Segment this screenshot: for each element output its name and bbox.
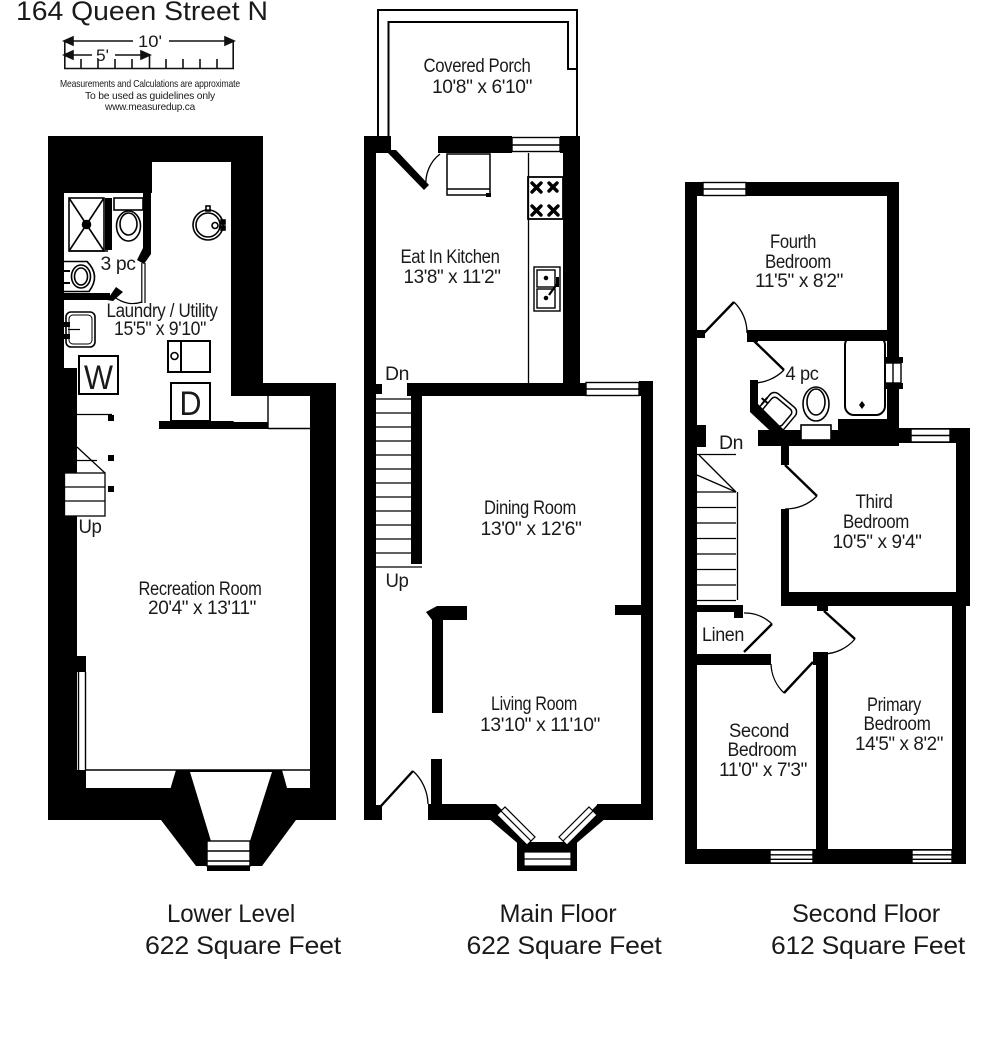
svg-text:11'5" x 8'2": 11'5" x 8'2" — [755, 271, 843, 292]
svg-text:10': 10' — [138, 32, 162, 51]
svg-text:20'4" x 13'11": 20'4" x 13'11" — [148, 598, 256, 619]
svg-text:13'8" x 11'2": 13'8" x 11'2" — [404, 267, 501, 288]
svg-text:11'0" x 7'3": 11'0" x 7'3" — [719, 760, 807, 781]
svg-text:4 pc: 4 pc — [786, 364, 819, 385]
svg-text:www.measuredup.ca: www.measuredup.ca — [104, 101, 195, 113]
svg-text:Bedroom: Bedroom — [864, 714, 931, 735]
svg-text:15'5" x 9'10": 15'5" x 9'10" — [114, 319, 206, 340]
svg-text:10'5" x 9'4": 10'5" x 9'4" — [833, 532, 922, 553]
svg-text:Up: Up — [386, 571, 409, 592]
svg-text:Second: Second — [729, 721, 789, 742]
svg-text:Dining Room: Dining Room — [484, 498, 576, 519]
svg-text:D: D — [180, 385, 202, 423]
svg-text:Dn: Dn — [719, 433, 743, 454]
svg-text:164 Queen Street N: 164 Queen Street N — [16, 0, 268, 26]
svg-text:3 pc: 3 pc — [101, 254, 136, 275]
svg-text:622 Square Feet: 622 Square Feet — [467, 932, 662, 960]
svg-text:Second Floor: Second Floor — [792, 900, 940, 928]
svg-text:Bedroom: Bedroom — [765, 252, 831, 273]
svg-text:Third: Third — [856, 492, 893, 513]
svg-text:Bedroom: Bedroom — [728, 740, 797, 761]
svg-text:Measurements and Calculations: Measurements and Calculations are approx… — [60, 78, 240, 90]
svg-text:Fourth: Fourth — [770, 232, 816, 253]
svg-text:10'8" x 6'10": 10'8" x 6'10" — [432, 77, 532, 98]
svg-text:Linen: Linen — [702, 625, 744, 646]
svg-text:Eat In Kitchen: Eat In Kitchen — [401, 247, 500, 268]
svg-text:Dn: Dn — [385, 364, 409, 385]
svg-text:Main Floor: Main Floor — [500, 900, 617, 928]
svg-text:W: W — [84, 359, 113, 397]
svg-text:13'10" x 11'10": 13'10" x 11'10" — [480, 715, 600, 736]
svg-text:Living Room: Living Room — [491, 694, 577, 715]
svg-text:Recreation Room: Recreation Room — [139, 579, 262, 600]
svg-text:612 Square Feet: 612 Square Feet — [771, 932, 965, 960]
svg-text:Bedroom: Bedroom — [843, 512, 909, 533]
svg-text:622 Square Feet: 622 Square Feet — [145, 932, 341, 960]
svg-text:Lower Level: Lower Level — [167, 900, 295, 928]
svg-text:Up: Up — [79, 517, 102, 538]
svg-text:5': 5' — [96, 46, 109, 65]
svg-text:13'0" x 12'6": 13'0" x 12'6" — [481, 519, 582, 540]
svg-text:Covered Porch: Covered Porch — [424, 56, 531, 77]
svg-text:14'5" x 8'2": 14'5" x 8'2" — [855, 734, 943, 755]
svg-text:Primary: Primary — [867, 695, 922, 716]
